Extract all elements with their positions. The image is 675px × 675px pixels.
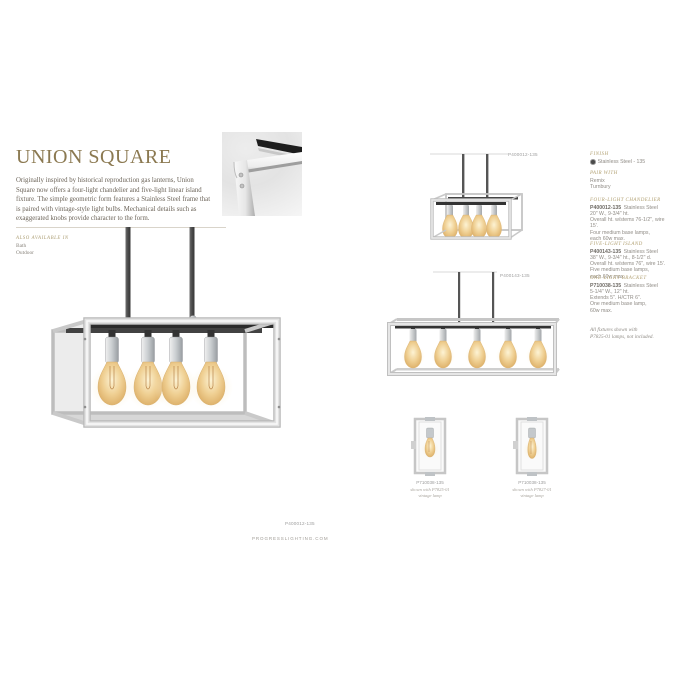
mount-arm: [513, 441, 518, 449]
edison-bulb: [528, 438, 536, 459]
four-light-chandelier-photo: [30, 227, 292, 517]
intro-paragraph: Originally inspired by historical reprod…: [16, 176, 214, 224]
page-title: UNION SQUARE: [16, 146, 171, 169]
edison-bulb: [484, 205, 504, 239]
finish-value: Stainless Steel - 135: [590, 159, 674, 165]
edison-bulb: [90, 330, 134, 409]
product-label: P400143-135: [500, 273, 530, 278]
edison-bulb: [496, 325, 520, 368]
bottom-cap: [527, 472, 537, 476]
mount-arm: [411, 441, 416, 449]
ceiling-line: [433, 272, 497, 273]
spec-sku: P400143-135: [590, 249, 621, 255]
rivet: [84, 406, 87, 409]
edison-bulb: [401, 325, 425, 368]
edison-bulb: [431, 325, 455, 368]
frame-corner-detail-photo: [222, 132, 302, 216]
frame-back-rail: [397, 318, 559, 321]
rivet: [240, 184, 244, 188]
rivet: [278, 338, 281, 341]
rivet: [84, 338, 87, 341]
spec-heading: ONE-LIGHT BRACKET: [590, 276, 674, 281]
top-cap: [425, 417, 435, 421]
socket: [529, 428, 536, 438]
pair-with-heading: PAIR WITH: [590, 171, 674, 176]
rivet: [278, 406, 281, 409]
sconce-caption-left: P710038-135 shown with P7825-01 vintage …: [388, 480, 472, 498]
finish-swatch-icon: [590, 159, 596, 165]
sconce-caption-right: P710038-135 shown with P7827-01 vintage …: [490, 480, 574, 498]
product-label: P710038-135: [490, 480, 574, 485]
spec-heading: FIVE-LIGHT ISLAND: [590, 242, 674, 247]
edison-bulb: [465, 325, 489, 368]
spec-sku: P710038-135: [590, 283, 621, 289]
product-label: P400012-135: [285, 521, 315, 526]
spec-sku: P400012-135: [590, 205, 621, 211]
small-chandelier-photo: [426, 148, 540, 240]
product-label: P400012-135: [508, 152, 538, 157]
spec-one-light-bracket: ONE-LIGHT BRACKET P710038-135 Stainless …: [590, 276, 674, 314]
stem-rod: [458, 272, 460, 326]
frame-corner-illustration: [222, 132, 302, 216]
bottom-cap: [425, 472, 435, 476]
product-label: P710038-135: [388, 480, 472, 485]
spec-heading: FOUR-LIGHT CHANDELIER: [590, 198, 674, 203]
stem-rod: [190, 227, 195, 319]
spec-five-light-island: FIVE-LIGHT ISLAND P400143-135 Stainless …: [590, 242, 674, 280]
socket: [427, 428, 434, 438]
edison-bulb: [189, 330, 233, 409]
stem-rod: [486, 154, 488, 198]
top-cap: [527, 417, 537, 421]
lamps-note: All fixtures shown with P7825-01 lamps, …: [590, 327, 674, 340]
edison-bulb: [526, 325, 550, 368]
spec-four-light-chandelier: FOUR-LIGHT CHANDELIER P400012-135 Stainl…: [590, 198, 674, 242]
pair-with-item: Turnbury: [590, 184, 674, 190]
spec-finish: FINISH Stainless Steel - 135: [590, 152, 674, 165]
ceiling-line: [430, 154, 508, 155]
edison-bulb: [440, 205, 460, 239]
stem-rod: [126, 227, 131, 325]
rivet: [239, 173, 243, 177]
finish-heading: FINISH: [590, 152, 674, 157]
spec-pair-with: PAIR WITH Remix Turnbury: [590, 171, 674, 190]
one-light-bracket-photo-left: [408, 416, 452, 477]
website-text: PROGRESSLIGHTING.COM: [252, 536, 329, 541]
five-light-island-photo: [383, 268, 563, 390]
one-light-bracket-photo-right: [510, 416, 554, 477]
catalog-page: UNION SQUARE Originally inspired by hist…: [0, 0, 675, 675]
stem-rod: [492, 272, 494, 323]
